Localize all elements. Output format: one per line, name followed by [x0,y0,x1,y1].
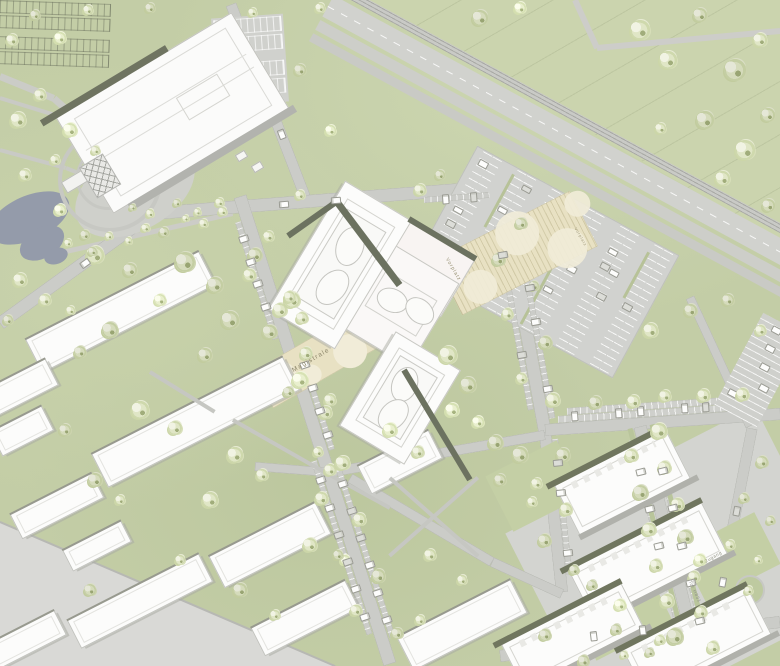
tree [227,447,243,463]
tree [115,495,125,505]
tree [539,336,552,349]
tree [472,10,488,26]
parking-stalls [0,15,111,32]
car [703,402,710,412]
park-road [0,73,55,101]
tree [630,20,650,40]
tree [722,294,734,306]
tree [59,424,71,436]
tree [515,218,526,229]
tree [695,606,707,618]
tree [445,403,459,417]
car [765,344,777,354]
tree [494,474,506,486]
tree [315,3,325,13]
residential-building [251,580,360,657]
tree [262,325,276,339]
tree [256,469,268,481]
tree [6,34,18,46]
tree [83,5,93,15]
tree [131,401,149,419]
tree [263,231,275,243]
tree [707,641,719,653]
tree [63,123,77,137]
shed [251,161,265,174]
tree [472,416,484,428]
slab-roof-outline [0,411,48,451]
tree [221,311,239,329]
tree [655,635,665,645]
tree [202,492,218,508]
car [307,384,319,393]
tree [620,651,628,659]
tree [424,549,436,561]
tree [13,273,27,287]
tree [659,390,671,402]
tree [353,513,366,526]
tree [66,306,75,315]
tree [3,315,13,325]
car [571,411,578,421]
car [681,403,688,413]
tree [315,492,327,504]
tree [651,423,667,439]
tree [578,655,589,666]
car [330,196,340,203]
tree [283,387,294,398]
residential-building [0,405,54,456]
car [442,194,449,204]
tree [324,394,336,406]
tree [173,199,181,207]
tree [10,112,26,128]
tree [294,64,306,76]
tree [766,516,775,525]
tree [488,435,503,450]
car [759,362,771,372]
footpath [232,418,313,466]
tree [194,208,201,215]
tree [546,393,560,407]
tree [650,559,662,571]
tree [324,464,336,476]
tree [383,423,397,437]
tree [725,540,735,550]
tree [248,8,257,17]
tree [643,323,658,338]
tree [233,583,247,597]
tree [91,146,100,155]
tree [744,586,753,595]
tree [756,456,768,468]
tree [460,377,476,393]
tree [457,575,467,585]
slab-roof-outline [68,526,125,566]
car [758,383,770,393]
tree [292,372,308,388]
site-plan-layers [0,0,780,666]
tree [693,8,707,22]
tree [303,538,317,552]
car [498,251,509,259]
tree [243,269,256,282]
site-plan-canvas: Magistrale Vorplatz Vorplatz Zugang Tor … [0,0,780,666]
tree [175,555,185,565]
tree [642,523,655,536]
tree [146,209,154,217]
tree [129,204,136,211]
tree [415,615,425,625]
tree [715,171,730,186]
tree [614,599,626,611]
tree [295,190,305,200]
tree [512,447,528,463]
tree [625,449,638,462]
tree [145,3,155,13]
tree [270,610,280,620]
tree [412,446,424,458]
tree [175,252,195,272]
tree [39,294,51,306]
car [770,325,780,335]
tree [64,239,72,247]
tree [102,322,118,338]
tree [587,580,597,590]
tree [88,473,102,487]
car [562,549,573,557]
tree [198,348,212,362]
tree [372,569,385,582]
tree [313,447,323,457]
parking-stalls [0,0,111,17]
tree [762,199,775,212]
tree [659,51,677,69]
tree [655,123,666,134]
tree [667,628,684,645]
tree [154,294,166,306]
tree [199,219,208,228]
tree [696,111,714,129]
tree [159,227,169,237]
slab-roof-outline [16,478,98,533]
tree [54,204,66,216]
shed [235,150,249,163]
tree [753,33,767,47]
tree [514,2,526,14]
car [615,408,622,418]
tree [207,277,223,293]
tree [531,478,542,489]
tree [50,155,60,165]
tree [34,89,46,101]
car [556,489,567,497]
tree [435,170,445,180]
car [470,192,477,202]
tree [80,230,90,240]
tree [684,304,697,317]
tree [739,493,749,503]
tree [539,629,551,641]
tree [527,497,537,507]
tree [335,456,349,470]
tree [761,108,775,122]
car [278,200,288,207]
car [637,406,644,416]
tree [123,263,137,277]
tree [74,346,86,358]
tree [754,556,762,564]
tree [735,140,755,160]
tree [168,421,182,435]
tree [538,534,551,547]
tree [19,169,31,181]
tree [439,346,457,364]
parking-stalls [0,51,109,68]
tree [516,373,527,384]
tree [284,291,296,303]
tree [560,503,572,515]
tree [125,237,132,244]
tree [54,32,66,44]
tree [755,325,766,336]
tree [84,584,96,596]
tree [30,10,40,20]
tree [325,125,336,136]
tree [502,308,513,319]
car [553,459,564,467]
slab-roof-outline [0,364,53,412]
tree [296,312,308,324]
tree [414,184,426,196]
tree [724,59,746,81]
